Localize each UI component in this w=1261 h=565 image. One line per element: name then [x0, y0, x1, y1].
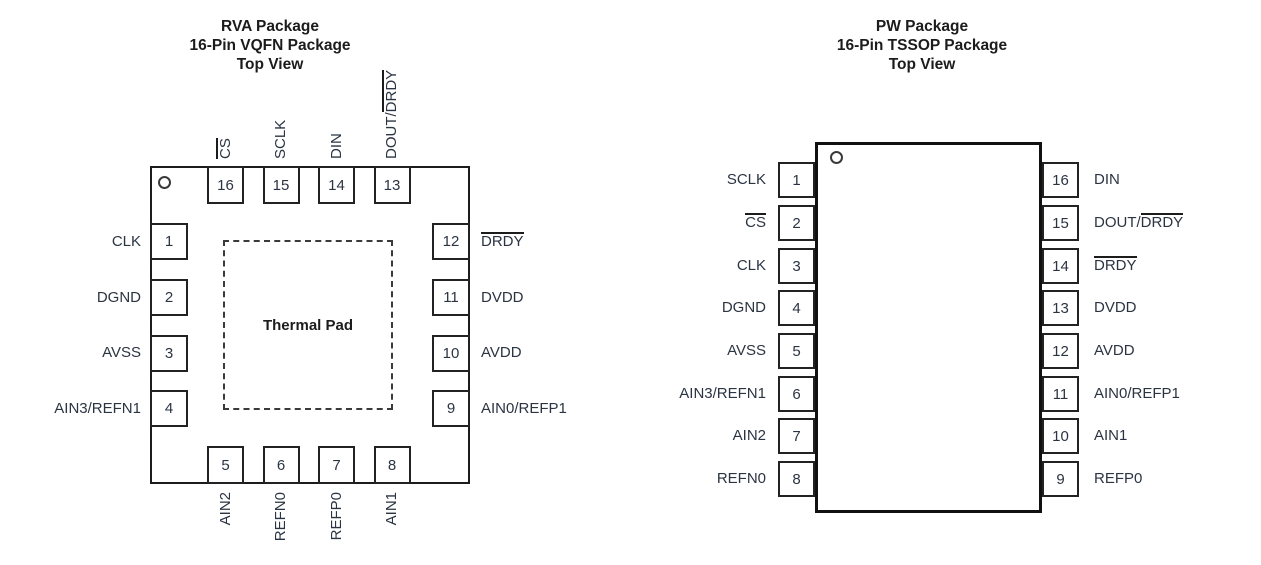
tssop-pin-label-11: AIN0/REFP1 [1094, 384, 1259, 404]
pin-number: 15 [1052, 215, 1069, 232]
pin-label-text: AVDD [481, 344, 522, 361]
vqfn-pin-label-12: DRDY [481, 232, 651, 252]
tssop-title-line2: 16-Pin TSSOP Package [837, 36, 1007, 55]
pin-number: 4 [792, 300, 800, 317]
pin-label-text: DIN [328, 133, 345, 159]
pin-number: 6 [277, 457, 285, 474]
tssop-pin-label-3: CLK [566, 256, 766, 276]
tssop-pin-box-13: 13 [1042, 290, 1079, 326]
tssop-pin-box-5: 5 [778, 333, 815, 369]
pin-number: 16 [217, 177, 234, 194]
pin-label-text: DVDD [481, 289, 524, 306]
pin-label-text: DRDY [382, 70, 399, 113]
vqfn-pin1-indicator-icon [158, 176, 171, 189]
tssop-pin-label-4: DGND [566, 298, 766, 318]
vqfn-pin-label-16: CS [216, 0, 236, 159]
tssop-pin-box-2: 2 [778, 205, 815, 241]
pin-number: 9 [447, 400, 455, 417]
tssop-pin-box-1: 1 [778, 162, 815, 198]
pin-label-text: AIN1 [383, 492, 400, 525]
pin-label-text: REFP0 [328, 492, 345, 540]
tssop-pin-label-9: REFP0 [1094, 469, 1259, 489]
pin-label-text: AVSS [727, 342, 766, 359]
pin-number: 13 [1052, 300, 1069, 317]
pin-number: 14 [328, 177, 345, 194]
tssop-title-line1: PW Package [837, 17, 1007, 36]
tssop-pin-label-7: AIN2 [566, 426, 766, 446]
vqfn-pin-box-8: 8 [374, 446, 411, 484]
pin-number: 7 [332, 457, 340, 474]
pin-number: 12 [1052, 343, 1069, 360]
pin-number: 11 [1053, 386, 1069, 403]
pin-label-text: CS [216, 138, 233, 159]
tssop-package-body [815, 142, 1042, 513]
pin-label-text: REFN0 [717, 470, 766, 487]
pin-label-text: DGND [722, 299, 766, 316]
tssop-title-line3: Top View [837, 55, 1007, 74]
vqfn-pin-box-12: 12 [432, 223, 470, 260]
vqfn-pin-box-10: 10 [432, 335, 470, 372]
pin-label-text: CLK [737, 257, 766, 274]
pin-label-text: AVSS [102, 344, 141, 361]
tssop-pin-label-2: CS [566, 213, 766, 233]
pin-label-text: DRDY [481, 232, 524, 249]
pin-label-text: SCLK [272, 120, 289, 159]
vqfn-pin-box-7: 7 [318, 446, 355, 484]
pin-number: 14 [1052, 258, 1069, 275]
pin-label-text: DGND [97, 289, 141, 306]
tssop-pin-box-12: 12 [1042, 333, 1079, 369]
pin-number: 10 [443, 345, 460, 362]
pin-label-text: DOUT/ [1094, 214, 1141, 231]
pin-label-text: CS [745, 213, 766, 230]
vqfn-pin-box-13: 13 [374, 166, 411, 204]
pin-label-text: DOUT/ [383, 112, 400, 159]
pin-label-text: AIN0/REFP1 [481, 400, 567, 417]
tssop-pin-box-11: 11 [1042, 376, 1079, 412]
vqfn-pin-label-2: DGND [0, 288, 141, 308]
pin-label-text: REFP0 [1094, 470, 1142, 487]
vqfn-pin-label-6: REFN0 [271, 492, 291, 565]
pin-number: 3 [165, 345, 173, 362]
vqfn-pin-box-4: 4 [150, 390, 188, 427]
pin-number: 8 [792, 471, 800, 488]
vqfn-pin-box-14: 14 [318, 166, 355, 204]
pin-number: 7 [792, 428, 800, 445]
tssop-pin1-indicator-icon [830, 151, 843, 164]
pin-number: 5 [792, 343, 800, 360]
pin-number: 2 [792, 215, 800, 232]
vqfn-pin-box-5: 5 [207, 446, 244, 484]
pin-number: 9 [1056, 471, 1064, 488]
vqfn-pin-label-8: AIN1 [382, 492, 402, 565]
pin-number: 10 [1052, 428, 1069, 445]
pin-number: 16 [1052, 172, 1069, 189]
tssop-pin-label-1: SCLK [566, 170, 766, 190]
tssop-pin-box-14: 14 [1042, 248, 1079, 284]
pin-number: 15 [273, 177, 290, 194]
pin-number: 3 [792, 258, 800, 275]
pin-number: 5 [221, 457, 229, 474]
pin-label-text: CLK [112, 233, 141, 250]
pin-number: 4 [165, 400, 173, 417]
vqfn-pin-label-5: AIN2 [216, 492, 236, 565]
vqfn-pin-label-4: AIN3/REFN1 [0, 399, 141, 419]
pin-label-text: AIN2 [733, 427, 766, 444]
pin-label-text: SCLK [727, 171, 766, 188]
pin-label-text: AIN0/REFP1 [1094, 385, 1180, 402]
pin-number: 1 [792, 172, 800, 189]
tssop-pin-label-13: DVDD [1094, 298, 1259, 318]
vqfn-pin-box-16: 16 [207, 166, 244, 204]
vqfn-thermal-pad: Thermal Pad [223, 240, 393, 410]
vqfn-pin-label-15: SCLK [271, 0, 291, 159]
tssop-pin-label-16: DIN [1094, 170, 1259, 190]
vqfn-pin-box-3: 3 [150, 335, 188, 372]
pin-number: 6 [792, 386, 800, 403]
pin-label-text: DRDY [1094, 256, 1137, 273]
pin-label-text: AIN1 [1094, 427, 1127, 444]
vqfn-pin-box-1: 1 [150, 223, 188, 260]
pin-number: 8 [388, 457, 396, 474]
tssop-pin-box-10: 10 [1042, 418, 1079, 454]
tssop-pin-label-15: DOUT/DRDY [1094, 213, 1259, 233]
pin-label-text: REFN0 [272, 492, 289, 541]
pin-number: 11 [443, 289, 459, 306]
pin-label-text: AVDD [1094, 342, 1135, 359]
pin-label-text: AIN3/REFN1 [54, 400, 141, 417]
vqfn-pin-label-3: AVSS [0, 343, 141, 363]
pin-number: 1 [165, 233, 173, 250]
tssop-pin-label-12: AVDD [1094, 341, 1259, 361]
tssop-pin-box-9: 9 [1042, 461, 1079, 497]
tssop-pin-label-14: DRDY [1094, 256, 1259, 276]
tssop-pin-box-6: 6 [778, 376, 815, 412]
pin-label-text: DIN [1094, 171, 1120, 188]
pinout-figure: RVA Package 16-Pin VQFN Package Top View… [0, 0, 1261, 565]
pin-number: 2 [165, 289, 173, 306]
vqfn-pin-box-11: 11 [432, 279, 470, 316]
tssop-pin-label-6: AIN3/REFN1 [566, 384, 766, 404]
vqfn-pin-box-6: 6 [263, 446, 300, 484]
tssop-pin-box-8: 8 [778, 461, 815, 497]
vqfn-pin-label-13: DOUT/DRDY [382, 0, 402, 159]
vqfn-pin-label-14: DIN [327, 0, 347, 159]
tssop-pin-label-5: AVSS [566, 341, 766, 361]
vqfn-pin-box-15: 15 [263, 166, 300, 204]
tssop-pin-box-4: 4 [778, 290, 815, 326]
vqfn-pin-label-1: CLK [0, 232, 141, 252]
vqfn-pin-box-9: 9 [432, 390, 470, 427]
vqfn-pin-label-7: REFP0 [327, 492, 347, 565]
tssop-pin-box-15: 15 [1042, 205, 1079, 241]
tssop-title: PW Package 16-Pin TSSOP Package Top View [837, 17, 1007, 74]
vqfn-pin-box-2: 2 [150, 279, 188, 316]
tssop-pin-label-8: REFN0 [566, 469, 766, 489]
pin-label-text: AIN2 [217, 492, 234, 525]
tssop-pin-box-16: 16 [1042, 162, 1079, 198]
pin-number: 12 [443, 233, 460, 250]
thermal-pad-label: Thermal Pad [263, 317, 353, 334]
pin-label-text: AIN3/REFN1 [679, 385, 766, 402]
pin-label-text: DVDD [1094, 299, 1137, 316]
tssop-pin-label-10: AIN1 [1094, 426, 1259, 446]
tssop-pin-box-7: 7 [778, 418, 815, 454]
pin-label-text: DRDY [1141, 213, 1184, 230]
tssop-pin-box-3: 3 [778, 248, 815, 284]
pin-number: 13 [384, 177, 401, 194]
